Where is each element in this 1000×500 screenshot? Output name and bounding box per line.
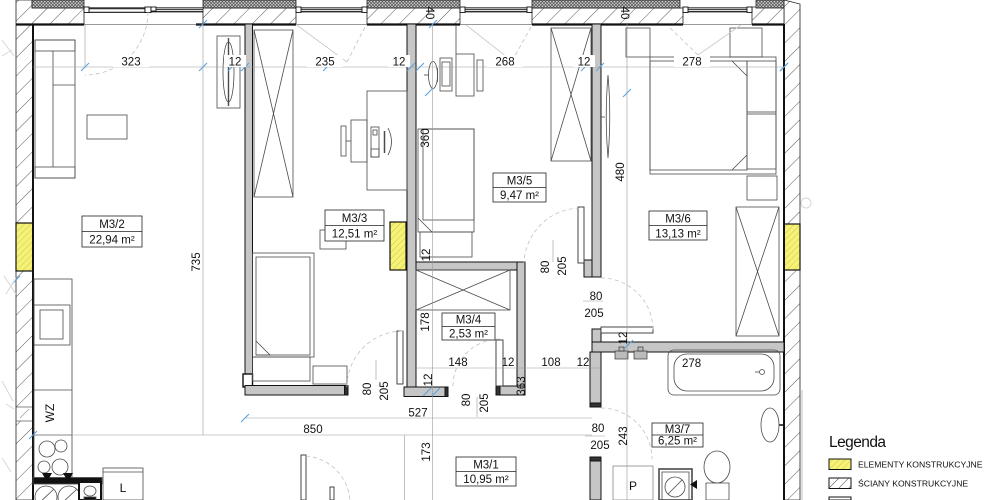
svg-text:10,95 m²: 10,95 m² <box>463 474 509 486</box>
svg-text:278: 278 <box>682 358 701 370</box>
svg-text:173: 173 <box>421 442 433 461</box>
svg-text:12: 12 <box>578 57 591 69</box>
svg-text:360: 360 <box>420 128 432 147</box>
svg-text:12: 12 <box>393 57 406 69</box>
svg-text:12: 12 <box>502 357 515 369</box>
svg-text:80: 80 <box>590 291 603 303</box>
svg-text:22,94 m²: 22,94 m² <box>89 235 135 247</box>
svg-text:12: 12 <box>421 249 433 262</box>
svg-text:M3/7: M3/7 <box>665 424 691 436</box>
svg-text:2,53 m²: 2,53 m² <box>449 329 488 341</box>
svg-text:40: 40 <box>423 7 435 20</box>
svg-text:Legenda: Legenda <box>829 434 886 451</box>
svg-text:L: L <box>120 481 127 495</box>
svg-text:M3/5: M3/5 <box>507 176 533 188</box>
svg-text:363: 363 <box>516 376 528 395</box>
svg-text:ELEMENTY KONSTRUKCYJNE: ELEMENTY KONSTRUKCYJNE <box>858 460 983 470</box>
svg-text:108: 108 <box>541 357 560 369</box>
svg-text:80: 80 <box>540 261 552 274</box>
svg-text:6,25 m²: 6,25 m² <box>658 436 697 448</box>
svg-text:WZ: WZ <box>43 404 57 423</box>
svg-text:278: 278 <box>682 57 701 69</box>
svg-text:735: 735 <box>191 252 203 271</box>
svg-text:243: 243 <box>618 426 630 445</box>
svg-text:480: 480 <box>615 162 627 181</box>
svg-text:205: 205 <box>590 440 609 452</box>
svg-text:P: P <box>629 479 637 493</box>
svg-text:178: 178 <box>420 312 432 331</box>
svg-text:235: 235 <box>315 57 334 69</box>
svg-text:205: 205 <box>584 308 603 320</box>
svg-text:323: 323 <box>121 57 140 69</box>
svg-text:205: 205 <box>557 256 569 275</box>
svg-text:527: 527 <box>408 408 427 420</box>
svg-text:M3/6: M3/6 <box>665 214 691 226</box>
svg-text:M3/1: M3/1 <box>473 460 499 472</box>
svg-text:ŚCIANY KONSTRUKCYJNE: ŚCIANY KONSTRUKCYJNE <box>858 478 968 489</box>
svg-text:40: 40 <box>618 7 630 20</box>
svg-text:9,47 m²: 9,47 m² <box>500 190 539 202</box>
svg-text:148: 148 <box>448 357 467 369</box>
svg-text:13,13 m²: 13,13 m² <box>655 229 701 241</box>
svg-text:205: 205 <box>479 393 491 412</box>
svg-text:80: 80 <box>592 423 605 435</box>
svg-text:12,51 m²: 12,51 m² <box>332 229 378 241</box>
svg-text:850: 850 <box>303 424 322 436</box>
svg-text:12: 12 <box>229 57 242 69</box>
svg-text:80: 80 <box>362 383 374 396</box>
svg-text:M3/3: M3/3 <box>342 213 368 225</box>
svg-text:12: 12 <box>423 374 435 387</box>
svg-text:205: 205 <box>379 381 391 400</box>
svg-text:M3/2: M3/2 <box>99 219 125 231</box>
svg-text:12: 12 <box>577 357 590 369</box>
svg-text:M3/4: M3/4 <box>456 315 482 327</box>
svg-text:268: 268 <box>495 57 514 69</box>
svg-text:12: 12 <box>618 332 630 345</box>
svg-text:80: 80 <box>461 394 473 407</box>
